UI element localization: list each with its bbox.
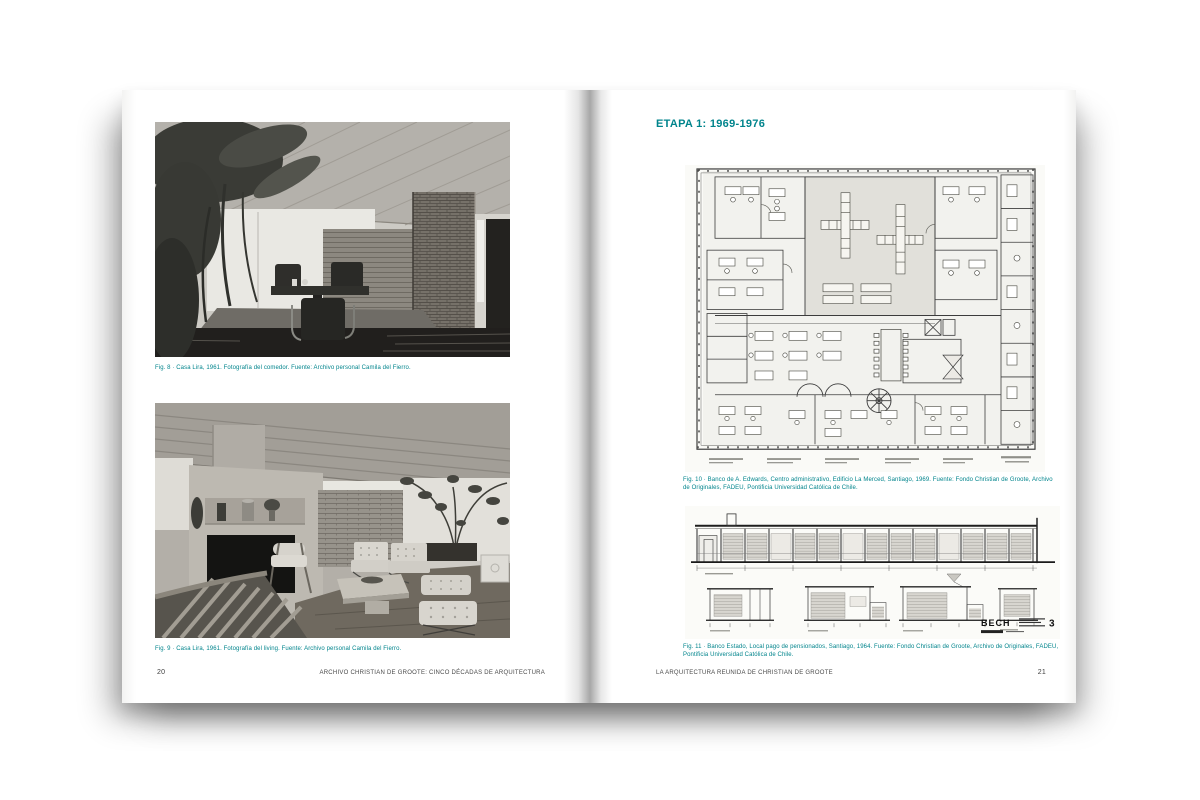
floor-plan-figure bbox=[685, 165, 1045, 472]
figure-caption-fig10: Fig. 10 · Banco de A. Edwards, Centro ad… bbox=[683, 476, 1055, 492]
book-spread: Fig. 8 · Casa Lira, 1961. Fotografía del… bbox=[122, 90, 1076, 703]
elevation-figure: BECH 3 bbox=[685, 506, 1060, 639]
stamp-code-text: BECH bbox=[981, 618, 1010, 628]
stamp-number-text: 3 bbox=[1049, 619, 1055, 630]
figure-caption-fig11: Fig. 11 · Banco Estado, Local pago de pe… bbox=[683, 643, 1067, 659]
photo-comedor bbox=[155, 122, 510, 357]
right-page-footer: LA ARQUITECTURA REUNIDA DE CHRISTIAN DE … bbox=[590, 670, 1076, 680]
left-page-footer: 20 ARCHIVO CHRISTIAN DE GROOTE: CINCO DÉ… bbox=[122, 670, 590, 680]
elevation-image: BECH 3 bbox=[685, 506, 1060, 639]
photo-living-image bbox=[155, 403, 510, 638]
photo-comedor-image bbox=[155, 122, 510, 357]
left-page-number: 20 bbox=[157, 669, 165, 676]
right-page: ETAPA 1: 1969-1976 bbox=[590, 90, 1076, 703]
left-page: Fig. 8 · Casa Lira, 1961. Fotografía del… bbox=[122, 90, 590, 703]
photo-living bbox=[155, 403, 510, 638]
floor-plan-image bbox=[685, 165, 1045, 472]
right-running-title: LA ARQUITECTURA REUNIDA DE CHRISTIAN DE … bbox=[656, 670, 833, 676]
section-heading: ETAPA 1: 1969-1976 bbox=[656, 118, 765, 130]
figure-caption-fig9: Fig. 9 · Casa Lira, 1961. Fotografía del… bbox=[155, 645, 500, 653]
left-running-title: ARCHIVO CHRISTIAN DE GROOTE: CINCO DÉCAD… bbox=[319, 670, 545, 676]
right-page-number: 21 bbox=[1038, 669, 1046, 676]
figure-caption-fig8: Fig. 8 · Casa Lira, 1961. Fotografía del… bbox=[155, 364, 500, 372]
